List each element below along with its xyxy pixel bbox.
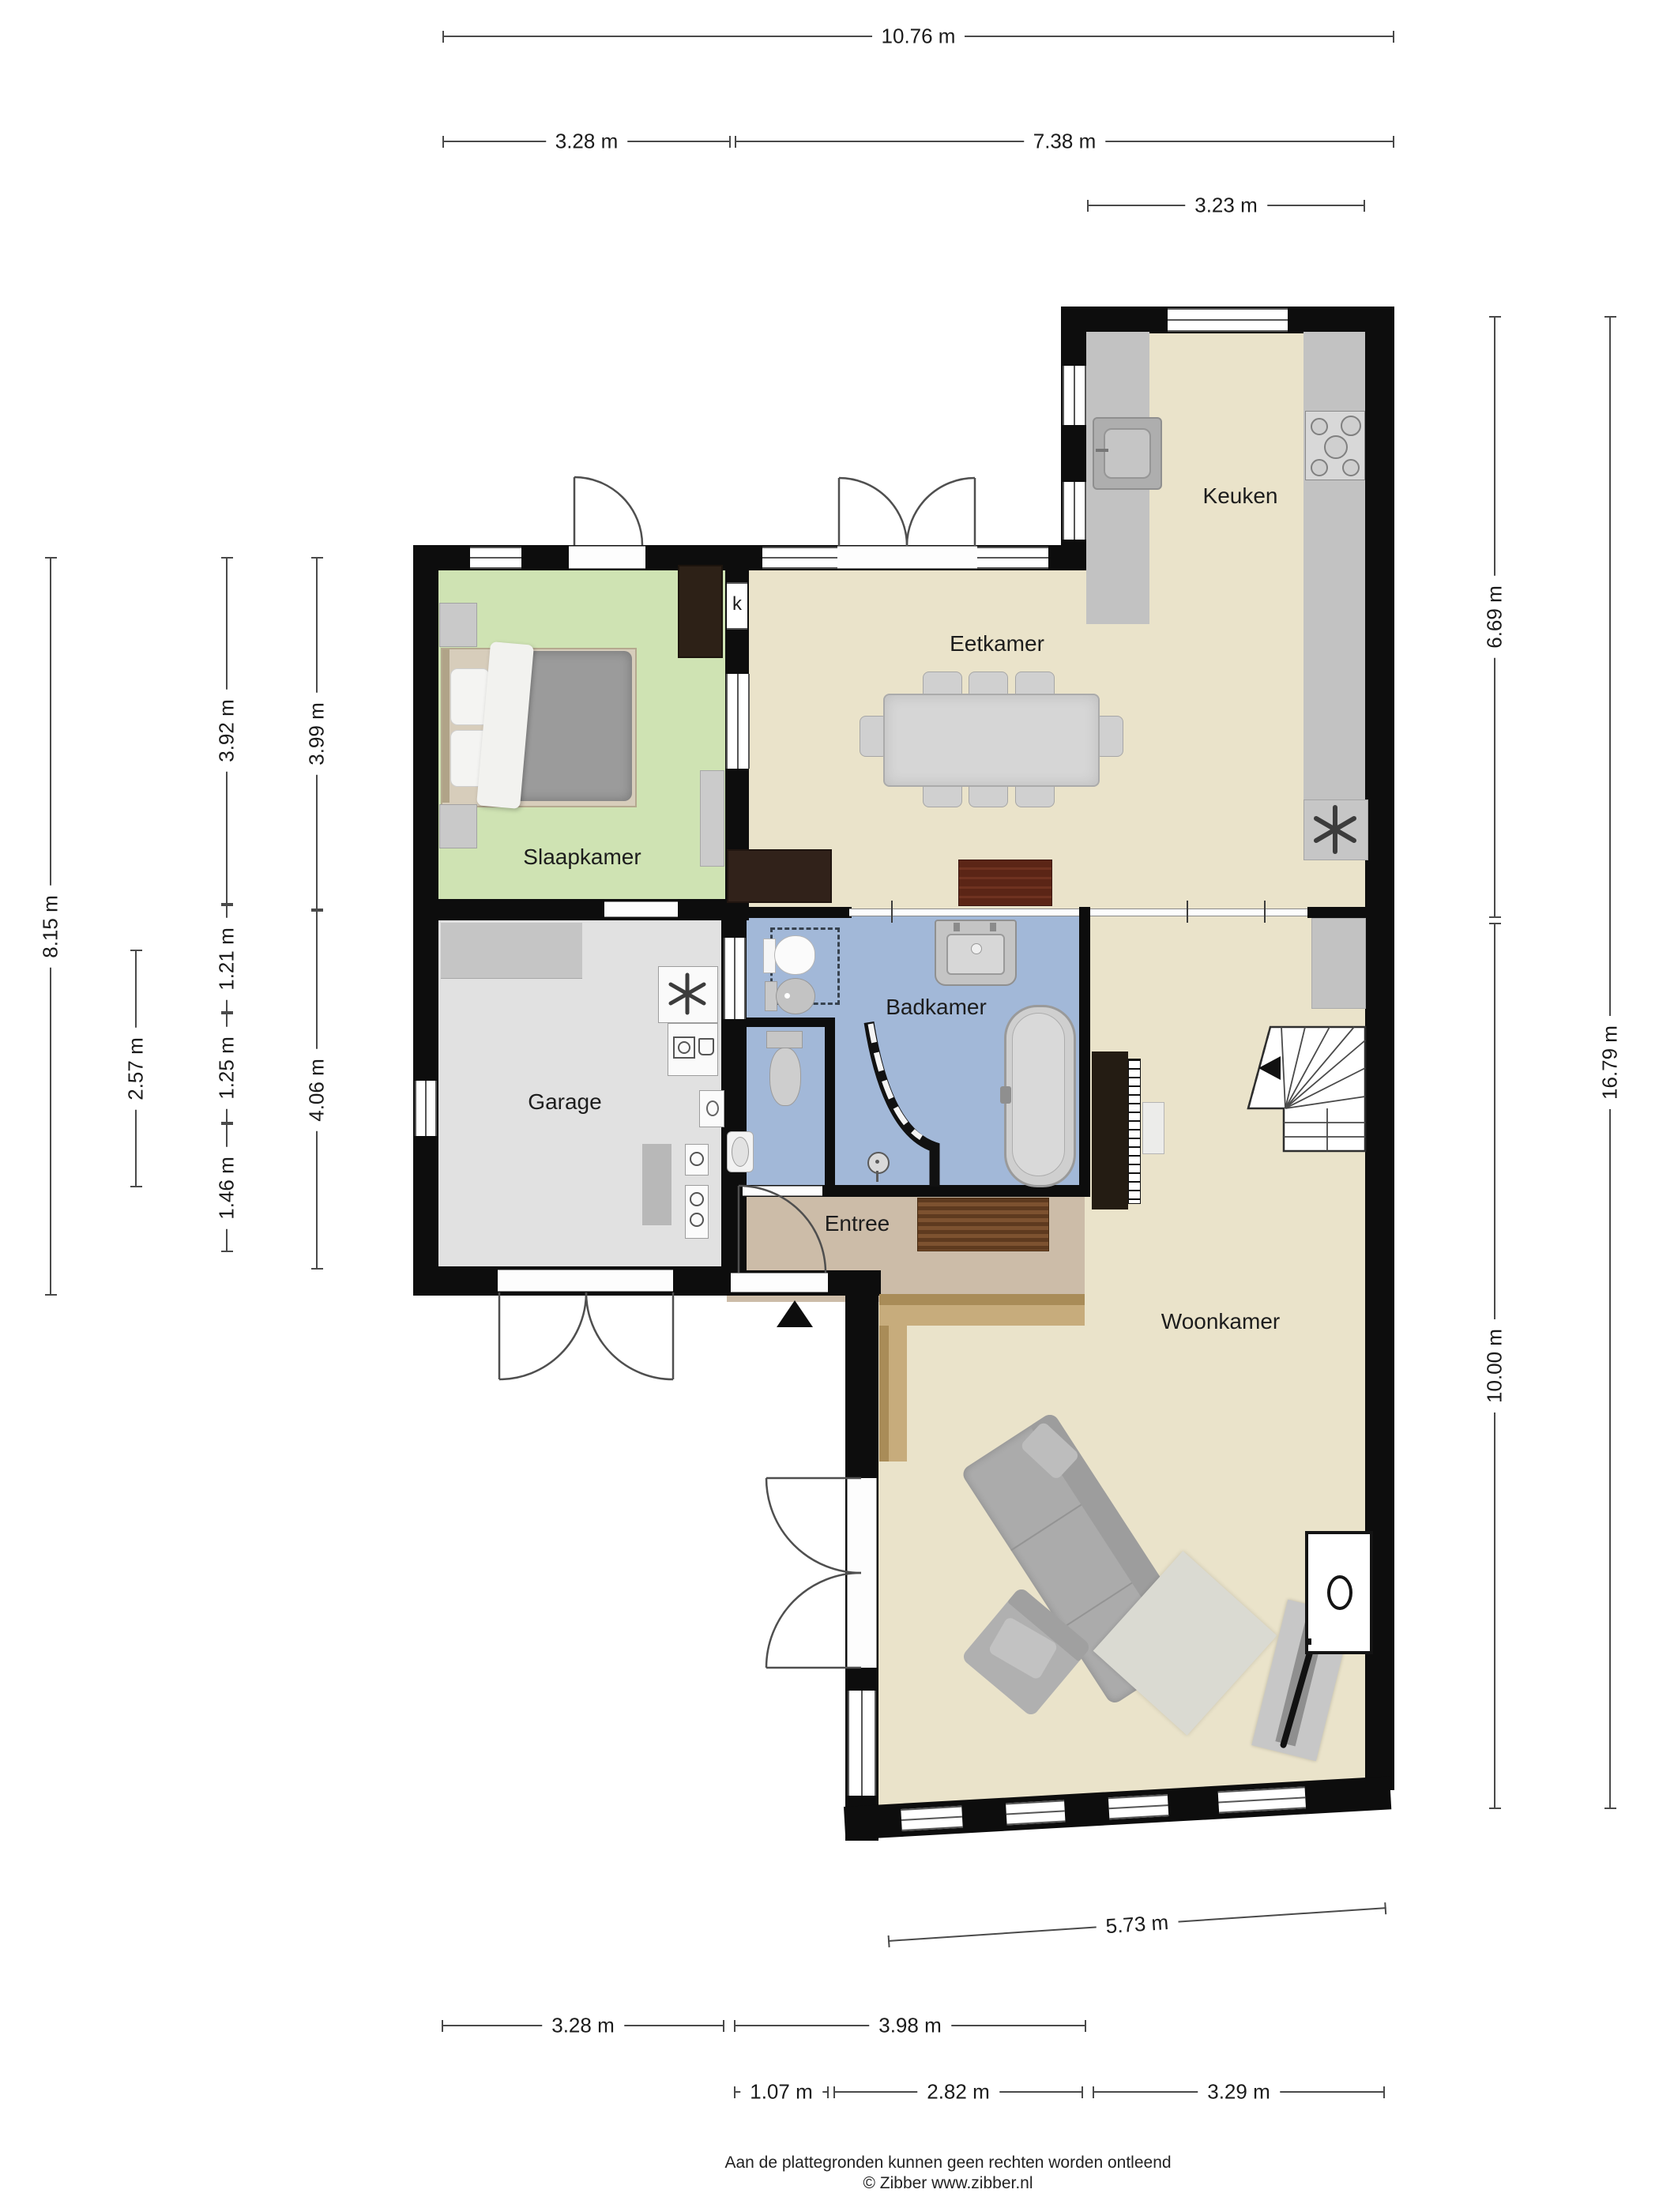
dim-label: 1.21 m bbox=[215, 918, 239, 1000]
dim-label: 8.15 m bbox=[39, 886, 63, 968]
dim-label: 3.99 m bbox=[305, 693, 329, 775]
dim-label: 10.76 m bbox=[872, 24, 965, 49]
shower-curved-wall bbox=[869, 1022, 935, 1187]
dim-right-bottom: 10.00 m bbox=[1494, 923, 1495, 1809]
label-keuken: Keuken bbox=[1203, 483, 1278, 509]
dim-left-c4-a: 3.99 m bbox=[316, 557, 318, 910]
dim-left-mid: 2.57 m bbox=[135, 950, 137, 1187]
copyright-text: © Zibber www.zibber.nl bbox=[395, 2174, 1501, 2193]
dim-left-c3-b: 1.21 m bbox=[226, 905, 228, 1013]
dim-left-c4-b: 4.06 m bbox=[316, 910, 318, 1270]
dim-label: 1.46 m bbox=[215, 1147, 239, 1229]
disclaimer-text: Aan de plattegronden kunnen geen rechten… bbox=[395, 2154, 1501, 2172]
dim-right-total: 16.79 m bbox=[1609, 316, 1611, 1809]
dim-top-total: 10.76 m bbox=[442, 36, 1394, 37]
door-arcs-garage bbox=[499, 1292, 673, 1379]
label-eetkamer: Eetkamer bbox=[950, 631, 1044, 656]
label-woonkamer: Woonkamer bbox=[1161, 1309, 1280, 1334]
dim-top-right: 7.38 m bbox=[735, 141, 1394, 142]
dim-label: 7.38 m bbox=[1024, 130, 1106, 154]
dim-left-c3-a: 3.92 m bbox=[226, 557, 228, 905]
dim-bottom-a2: 3.98 m bbox=[734, 2025, 1086, 2026]
label-garage: Garage bbox=[528, 1089, 601, 1115]
dim-label: 6.69 m bbox=[1483, 576, 1507, 658]
label-entree: Entree bbox=[825, 1211, 890, 1236]
dim-label: 1.25 m bbox=[215, 1027, 239, 1109]
door-arc-front bbox=[739, 1186, 826, 1273]
vent-fan-icon-garage bbox=[671, 975, 704, 1013]
label-badkamer: Badkamer bbox=[886, 995, 987, 1020]
door-arc-slaapkamer bbox=[574, 477, 642, 545]
dim-label: 2.82 m bbox=[917, 2080, 999, 2105]
dim-label: 3.98 m bbox=[869, 2014, 951, 2038]
dim-left-c3-c: 1.25 m bbox=[226, 1013, 228, 1123]
dim-bottom-b1: 1.07 m bbox=[734, 2091, 829, 2093]
label-slaapkamer: Slaapkamer bbox=[523, 845, 641, 870]
dim-bottom-b2: 2.82 m bbox=[833, 2091, 1083, 2093]
dim-right-top: 6.69 m bbox=[1494, 316, 1495, 918]
dim-top-kitchen: 3.23 m bbox=[1087, 205, 1365, 206]
dim-label: 1.07 m bbox=[740, 2080, 822, 2105]
dim-label: 3.23 m bbox=[1185, 194, 1267, 218]
dim-label: 3.28 m bbox=[546, 130, 628, 154]
floorplan-canvas: Keuken Eetkamer Slaapkamer Badkamer Gara… bbox=[0, 0, 1659, 2212]
dim-label: 3.28 m bbox=[542, 2014, 624, 2038]
label-closet-k: k bbox=[732, 593, 742, 615]
plan-symbols-layer bbox=[0, 0, 1659, 2212]
stairs bbox=[1248, 1027, 1365, 1151]
entrance-arrow-icon bbox=[777, 1300, 813, 1327]
dim-label: 4.06 m bbox=[305, 1049, 329, 1131]
vent-fan-icon-kitchen bbox=[1316, 807, 1354, 852]
dim-bottom-b3: 3.29 m bbox=[1093, 2091, 1385, 2093]
dim-top-left: 3.28 m bbox=[442, 141, 731, 142]
dim-label: 2.57 m bbox=[124, 1028, 149, 1110]
dim-label: 10.00 m bbox=[1483, 1319, 1507, 1413]
door-arcs-eetkamer bbox=[839, 478, 975, 546]
dim-bottom-a1: 3.28 m bbox=[442, 2025, 724, 2026]
dim-left-total: 8.15 m bbox=[50, 557, 51, 1296]
dim-label: 16.79 m bbox=[1598, 1016, 1623, 1109]
dim-label: 3.29 m bbox=[1198, 2080, 1280, 2105]
door-arcs-woonkamer bbox=[766, 1478, 861, 1668]
dim-left-c3-d: 1.46 m bbox=[226, 1123, 228, 1252]
dim-label: 3.92 m bbox=[215, 690, 239, 772]
